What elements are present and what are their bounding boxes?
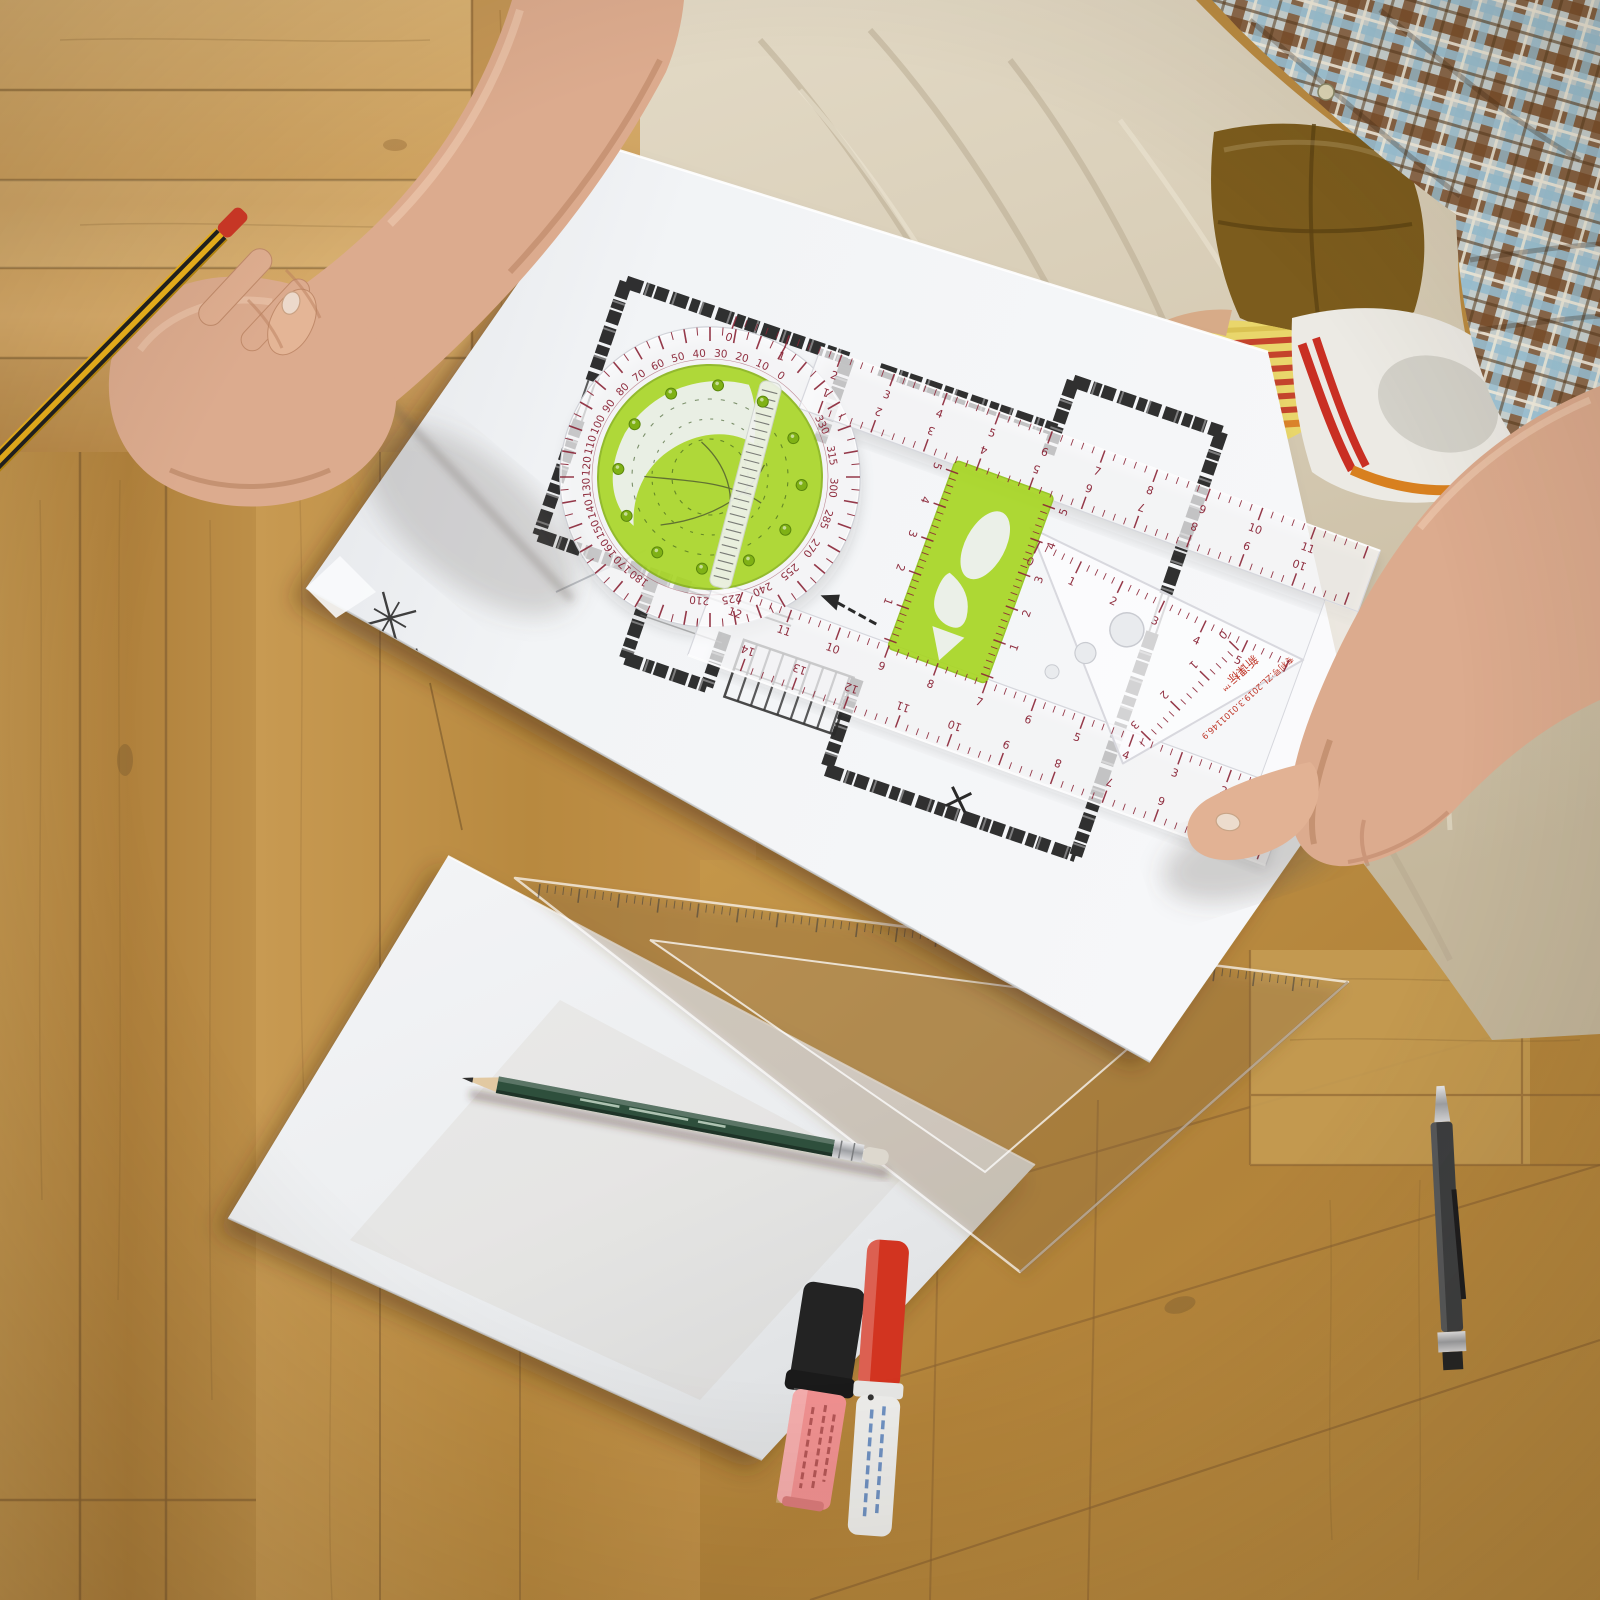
photo-stage: N 新课标™ 专利号:ZL.2019.3.0101146.9 <box>0 0 1600 1600</box>
vignette-overlay <box>0 0 1600 1600</box>
